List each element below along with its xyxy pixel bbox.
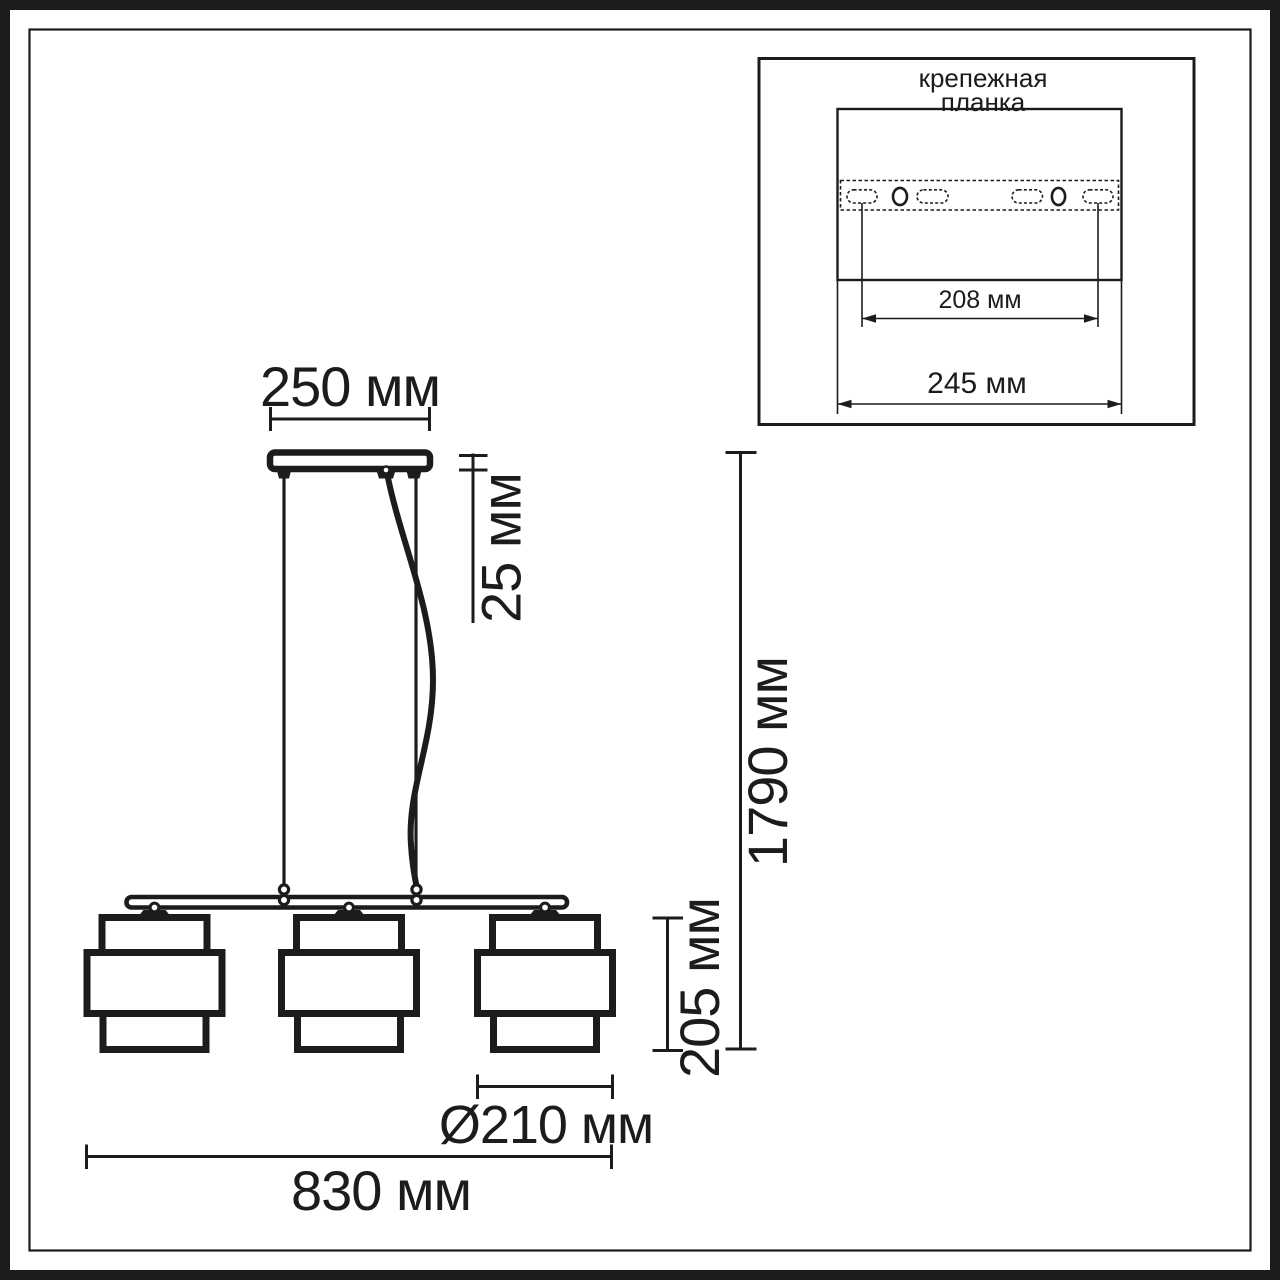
connector-bead [412, 895, 421, 904]
connector-bead [279, 895, 288, 904]
mounting-plate-inset: крепежная планка 208 мм 245 мм [759, 59, 1194, 425]
wire-connector-right [412, 885, 421, 905]
dim-label-hole-spacing: 208 мм [938, 286, 1021, 314]
ceiling-canopy [270, 453, 430, 470]
connector-bead [412, 885, 421, 894]
dim-arrow [862, 314, 876, 323]
cable-gland-dot [383, 467, 390, 474]
shade-bottom-tier [494, 1012, 597, 1050]
dim-overall-width: 830 мм [87, 1145, 612, 1223]
canopy-stub-left [277, 469, 292, 479]
shade-middle-tier [478, 953, 613, 1014]
screw-hole-1 [893, 188, 907, 205]
mount-knob [150, 903, 159, 912]
shade-bottom-tier [298, 1012, 401, 1050]
dim-shade-diameter: Ø210 мм [439, 1075, 653, 1156]
dim-label-canopy-width: 250 мм [260, 355, 440, 418]
mounting-plate [838, 109, 1122, 280]
dim-overall-height: 1790 мм [726, 453, 800, 1050]
dim-label-shade-height: 205 мм [668, 898, 731, 1078]
dim-arrow [1084, 314, 1098, 323]
outer-frame [5, 5, 1275, 1275]
mount-knob [345, 903, 354, 912]
shade-top-tier [102, 918, 207, 955]
dim-label-overall-width: 830 мм [291, 1159, 471, 1222]
inner-frame [30, 30, 1251, 1251]
power-cable [388, 478, 433, 886]
mounting-slot-3 [1012, 190, 1043, 203]
bracket-strip [841, 181, 1119, 211]
shade-bottom-tier [103, 1012, 206, 1050]
dim-label-canopy-height: 25 мм [470, 473, 533, 623]
pendant-light-dimension-drawing: 250 мм 25 мм 1790 мм 205 мм Ø210 мм 830 … [0, 0, 1280, 1280]
connector-bead [279, 885, 288, 894]
inset-title-line2: планка [941, 87, 1026, 117]
mounting-slot-4 [1083, 190, 1113, 203]
lampshade-2 [282, 918, 417, 1050]
dim-hole-spacing: 208 мм [862, 203, 1098, 327]
lampshade-3 [478, 918, 613, 1050]
fixture-side-view [87, 453, 613, 1050]
mount-knob [541, 903, 550, 912]
dim-arrow [838, 400, 852, 409]
dim-label-overall-height: 1790 мм [736, 657, 799, 867]
shade-top-tier [297, 918, 402, 955]
mounting-slot-1 [847, 190, 877, 203]
dim-shade-height: 205 мм [653, 898, 732, 1078]
mounting-slot-2 [917, 190, 948, 203]
shade-middle-tier [282, 953, 417, 1014]
dim-label-shade-diameter: Ø210 мм [439, 1095, 653, 1155]
wire-connector-left [279, 885, 288, 905]
shade-top-tier [493, 918, 598, 955]
dim-canopy-height: 25 мм [459, 454, 533, 624]
screw-hole-2 [1052, 188, 1065, 205]
dim-label-plate-width: 245 мм [927, 367, 1027, 400]
dim-arrow [1108, 400, 1122, 409]
shade-middle-tier [87, 953, 222, 1014]
lampshade-1 [87, 918, 222, 1050]
canopy-stub-right [406, 469, 422, 479]
technical-drawing-page: 250 мм 25 мм 1790 мм 205 мм Ø210 мм 830 … [0, 0, 1280, 1280]
dim-canopy-width: 250 мм [260, 355, 440, 431]
